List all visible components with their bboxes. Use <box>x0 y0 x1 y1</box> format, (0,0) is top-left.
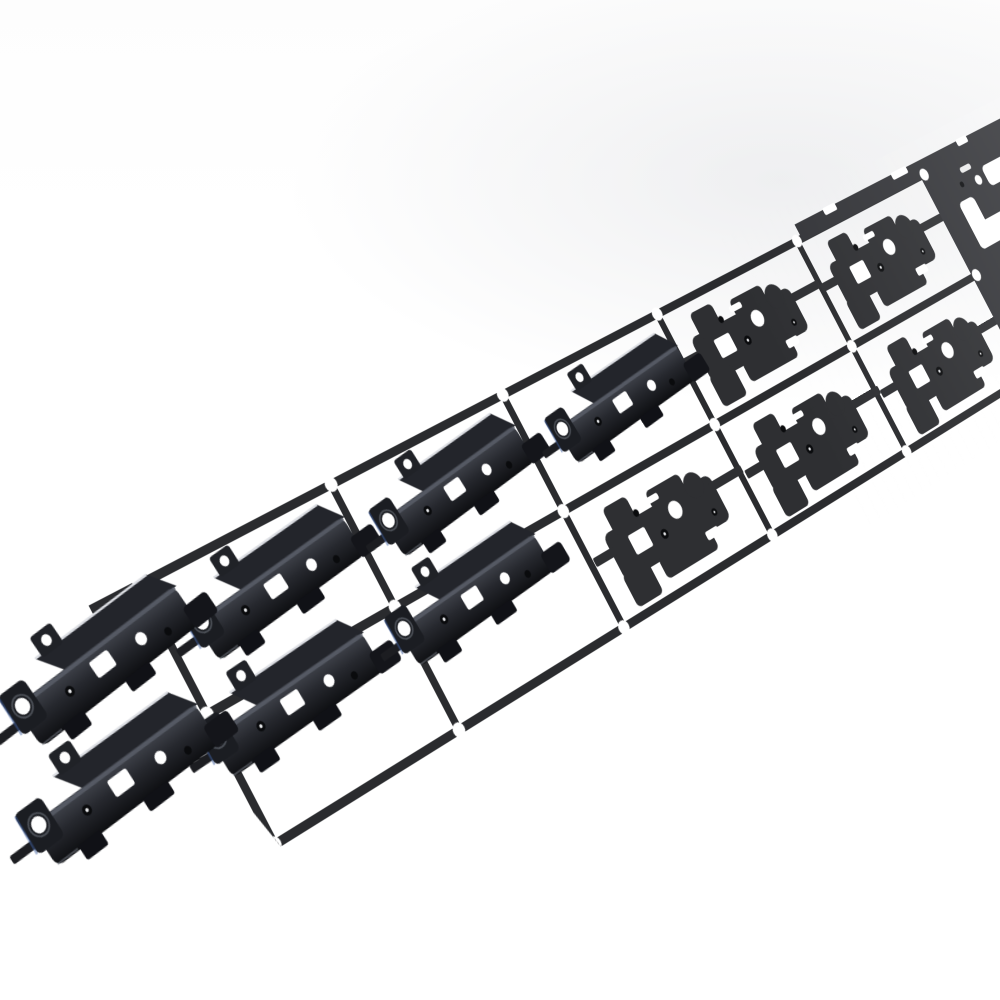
product-photo-canvas <box>0 0 1000 1000</box>
